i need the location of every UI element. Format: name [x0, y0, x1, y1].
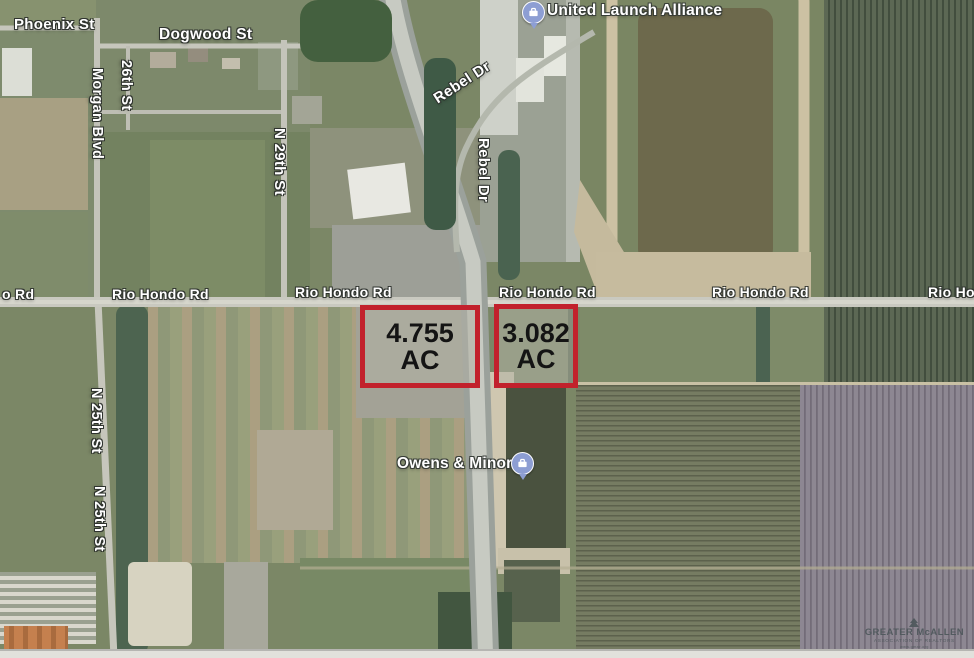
gray-patch — [257, 430, 333, 530]
briefcase-icon — [528, 7, 539, 18]
building — [224, 562, 268, 650]
parcel-acreage-value: 4.755 — [386, 320, 454, 346]
street-label-phoenix: Phoenix St — [14, 16, 95, 33]
street-label-rio-hondo-1: Rio Hondo Rd — [112, 286, 209, 302]
field-midleft-light — [150, 140, 265, 298]
building — [222, 58, 240, 69]
street-label-n25th-st-lower: N 25th St — [91, 486, 107, 552]
tree-grove — [498, 150, 520, 280]
poi-label-owens-minor[interactable]: Owens & Minor — [397, 455, 512, 473]
street-label-rio-hondo-partial-right: Rio Ho — [928, 284, 974, 300]
street-label-rio-hondo-2: Rio Hondo Rd — [295, 284, 392, 300]
poi-label-united-launch-alliance[interactable]: United Launch Alliance — [547, 2, 722, 20]
barn-building — [2, 48, 32, 96]
building — [188, 48, 208, 62]
aerial-imagery — [0, 0, 974, 658]
street-label-n29th-st: N 29th St — [271, 128, 288, 196]
street-label-rio-hondo-partial-left: o Rd — [2, 286, 34, 302]
striped-field-south — [576, 385, 800, 651]
street-label-n25th-st-upper: N 25th St — [88, 388, 104, 454]
farm-strips-center — [360, 418, 482, 560]
tree-grove — [300, 0, 392, 62]
briefcase-icon — [517, 458, 528, 469]
sand-patch — [128, 562, 192, 646]
plowed-field-left — [0, 98, 88, 210]
parcel-west-4-755-ac: 4.755 AC — [360, 305, 480, 388]
ula-place-marker[interactable] — [522, 1, 545, 24]
parcel-acreage-unit: AC — [401, 347, 440, 373]
building — [292, 96, 322, 124]
photo-border — [0, 649, 974, 658]
field-midright — [580, 306, 824, 384]
white-warehouse — [347, 163, 411, 220]
building — [258, 42, 298, 90]
parcel-acreage-value: 3.082 — [502, 320, 570, 346]
striped-field-se — [800, 385, 974, 651]
parcel-east-3-082-ac: 3.082 AC — [494, 304, 578, 388]
street-label-rio-hondo-3: Rio Hondo Rd — [499, 284, 596, 300]
watermark-assoc: ASSOCIATION OF REALTORS — [865, 639, 964, 645]
striped-field-ne — [824, 0, 974, 384]
tree-line — [756, 306, 770, 384]
street-label-dogwood: Dogwood St — [159, 26, 252, 44]
field-boundary — [576, 382, 974, 385]
building — [150, 52, 176, 68]
street-label-rebel-dr-vertical: Rebel Dr — [475, 138, 492, 202]
street-label-26th-st: 26th St — [118, 60, 134, 110]
watermark-org: GREATER McALLEN — [865, 628, 964, 639]
street-label-rio-hondo-4: Rio Hondo Rd — [712, 284, 809, 300]
parcel-acreage-unit: AC — [517, 346, 556, 372]
satellite-map[interactable]: Phoenix St Dogwood St Morgan Blvd 26th S… — [0, 0, 974, 658]
gmar-logo-icon — [905, 618, 923, 627]
street-label-morgan-blvd: Morgan Blvd — [89, 68, 105, 159]
realtor-watermark: GREATER McALLEN ASSOCIATION OF REALTORS … — [865, 618, 964, 649]
owens-minor-place-marker[interactable] — [511, 452, 534, 475]
brown-field — [638, 8, 773, 263]
